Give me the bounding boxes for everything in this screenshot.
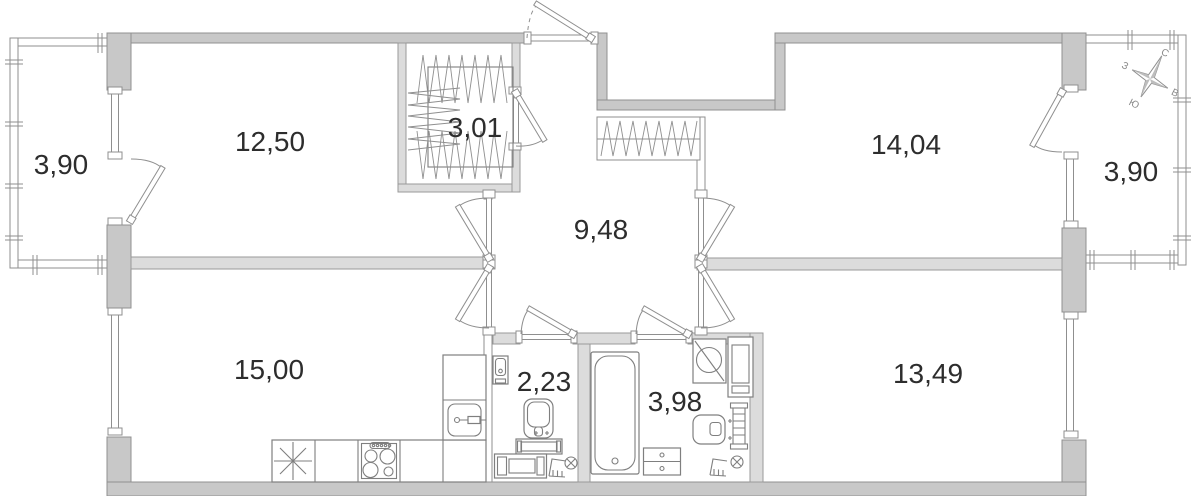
wc-sink <box>493 356 508 384</box>
kitchen-counter <box>272 355 486 482</box>
floor-plan-drawing: С В Ю З <box>0 0 1194 496</box>
floor-plan: С В Ю З 3,90 12,50 3,01 9,48 14,04 3,90 … <box>0 0 1194 496</box>
wc-toilet <box>524 399 553 438</box>
door-wc <box>521 305 577 339</box>
area-label-balcony-left: 3,90 <box>34 149 89 181</box>
area-label-bathroom: 3,98 <box>648 386 703 418</box>
right-balcony-railing <box>1086 30 1191 270</box>
towel-radiator <box>731 403 748 449</box>
window-room-top-left <box>108 87 122 225</box>
wc-drain-icon <box>549 457 577 477</box>
compass-south-label: Ю <box>1127 97 1141 111</box>
area-label-room-bottom-right: 13,49 <box>893 358 963 390</box>
bathtub <box>591 352 639 474</box>
area-label-room-top-right: 14,04 <box>871 129 941 161</box>
balcony-door-right <box>1029 88 1067 152</box>
bathroom-drain-icon <box>710 456 743 476</box>
area-label-room-top-left: 12,50 <box>235 126 305 158</box>
area-label-wc: 2,23 <box>517 366 572 398</box>
area-label-balcony-right: 3,90 <box>1104 156 1159 188</box>
wc-washer-slot <box>495 454 547 478</box>
door-bathroom <box>636 305 692 339</box>
bathroom-toilet <box>693 415 732 444</box>
area-label-wardrobe: 3,01 <box>448 112 503 144</box>
hall-closet <box>597 117 700 160</box>
window-room-bottom-left <box>108 308 122 435</box>
window-room-top-right <box>1064 85 1078 228</box>
compass-west-label: З <box>1120 60 1130 73</box>
washing-machine <box>693 339 726 383</box>
bathroom-cabinet <box>644 448 681 475</box>
window-room-bottom-right <box>1064 312 1078 438</box>
compass-rose: С В Ю З <box>1120 47 1181 112</box>
bathroom-tall-cabinet <box>728 337 753 397</box>
balcony-door-left <box>126 159 165 224</box>
wc-bench <box>516 439 562 454</box>
area-label-room-bottom-left: 15,00 <box>234 354 304 386</box>
area-label-hallway: 9,48 <box>574 214 629 246</box>
